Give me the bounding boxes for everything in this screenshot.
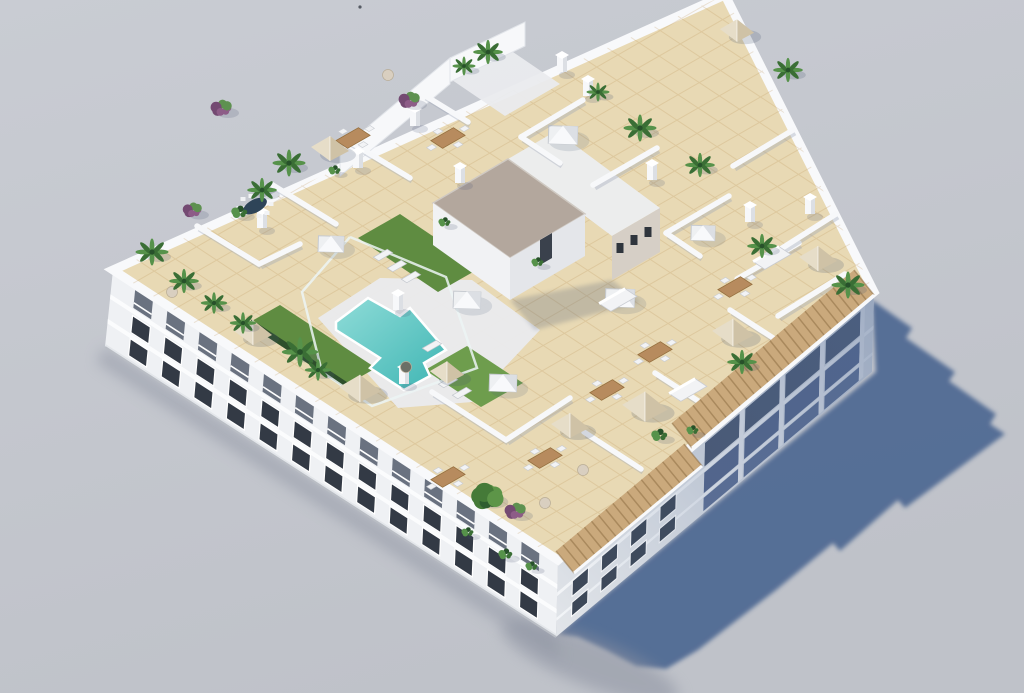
palm-crown [786,68,791,73]
foliage [222,101,231,110]
building-aerial-render [0,0,1024,693]
pillar-shadow [412,125,428,133]
core-window [617,243,624,253]
chair [269,202,274,206]
foliage [531,259,537,265]
foliage [511,511,519,519]
pillar-shadow [355,167,371,175]
core-window [645,227,652,237]
bird [358,5,361,8]
palm-crown [637,125,642,130]
palm-crown [760,244,765,249]
foliage [468,532,472,536]
palm-crown [486,50,491,55]
pillar-shadow [807,213,823,221]
palm-crown [260,188,265,193]
foliage [445,222,449,226]
chair [241,197,246,201]
foliage [240,212,245,217]
palm-crown [596,90,600,94]
pillar-shadow [401,383,417,391]
foliage [217,108,225,116]
palm-crown [845,282,850,287]
round-table [540,498,551,509]
foliage [461,529,467,535]
pillar-shadow [457,182,473,190]
foliage [231,207,239,215]
foliage [405,100,413,108]
pillar-shadow [747,221,763,229]
palm-crown [212,301,216,305]
pillar-shadow [259,227,275,235]
core-window [631,235,638,245]
palm-crown [286,160,291,165]
foliage [335,170,339,174]
foliage [516,504,525,513]
render-viewport [0,0,1024,693]
palm-crown [316,368,320,372]
foliage [532,566,536,570]
foliage [651,430,659,438]
foliage [498,550,505,557]
foliage [525,563,531,569]
foliage [438,219,444,225]
chair [257,214,262,218]
foliage [193,204,201,212]
foliage [506,554,511,559]
foliage [660,435,665,440]
palm-crown [698,163,703,168]
palm-crown [149,249,154,254]
foliage [693,430,697,434]
pillar-shadow [395,309,411,317]
palm-crown [740,360,745,365]
round-table [383,70,394,81]
pillar-shadow [649,179,665,187]
chair [265,211,270,215]
palm-crown [297,349,303,355]
palm-crown [462,64,466,68]
foliage [487,491,503,507]
pillar-shadow [559,71,575,79]
foliage [538,262,542,266]
palm-crown [241,321,245,325]
round-table [401,362,412,373]
foliage [686,427,692,433]
foliage [410,93,419,102]
round-table [578,465,589,476]
foliage [188,210,195,217]
palm-crown [182,279,187,284]
foliage [328,167,334,173]
